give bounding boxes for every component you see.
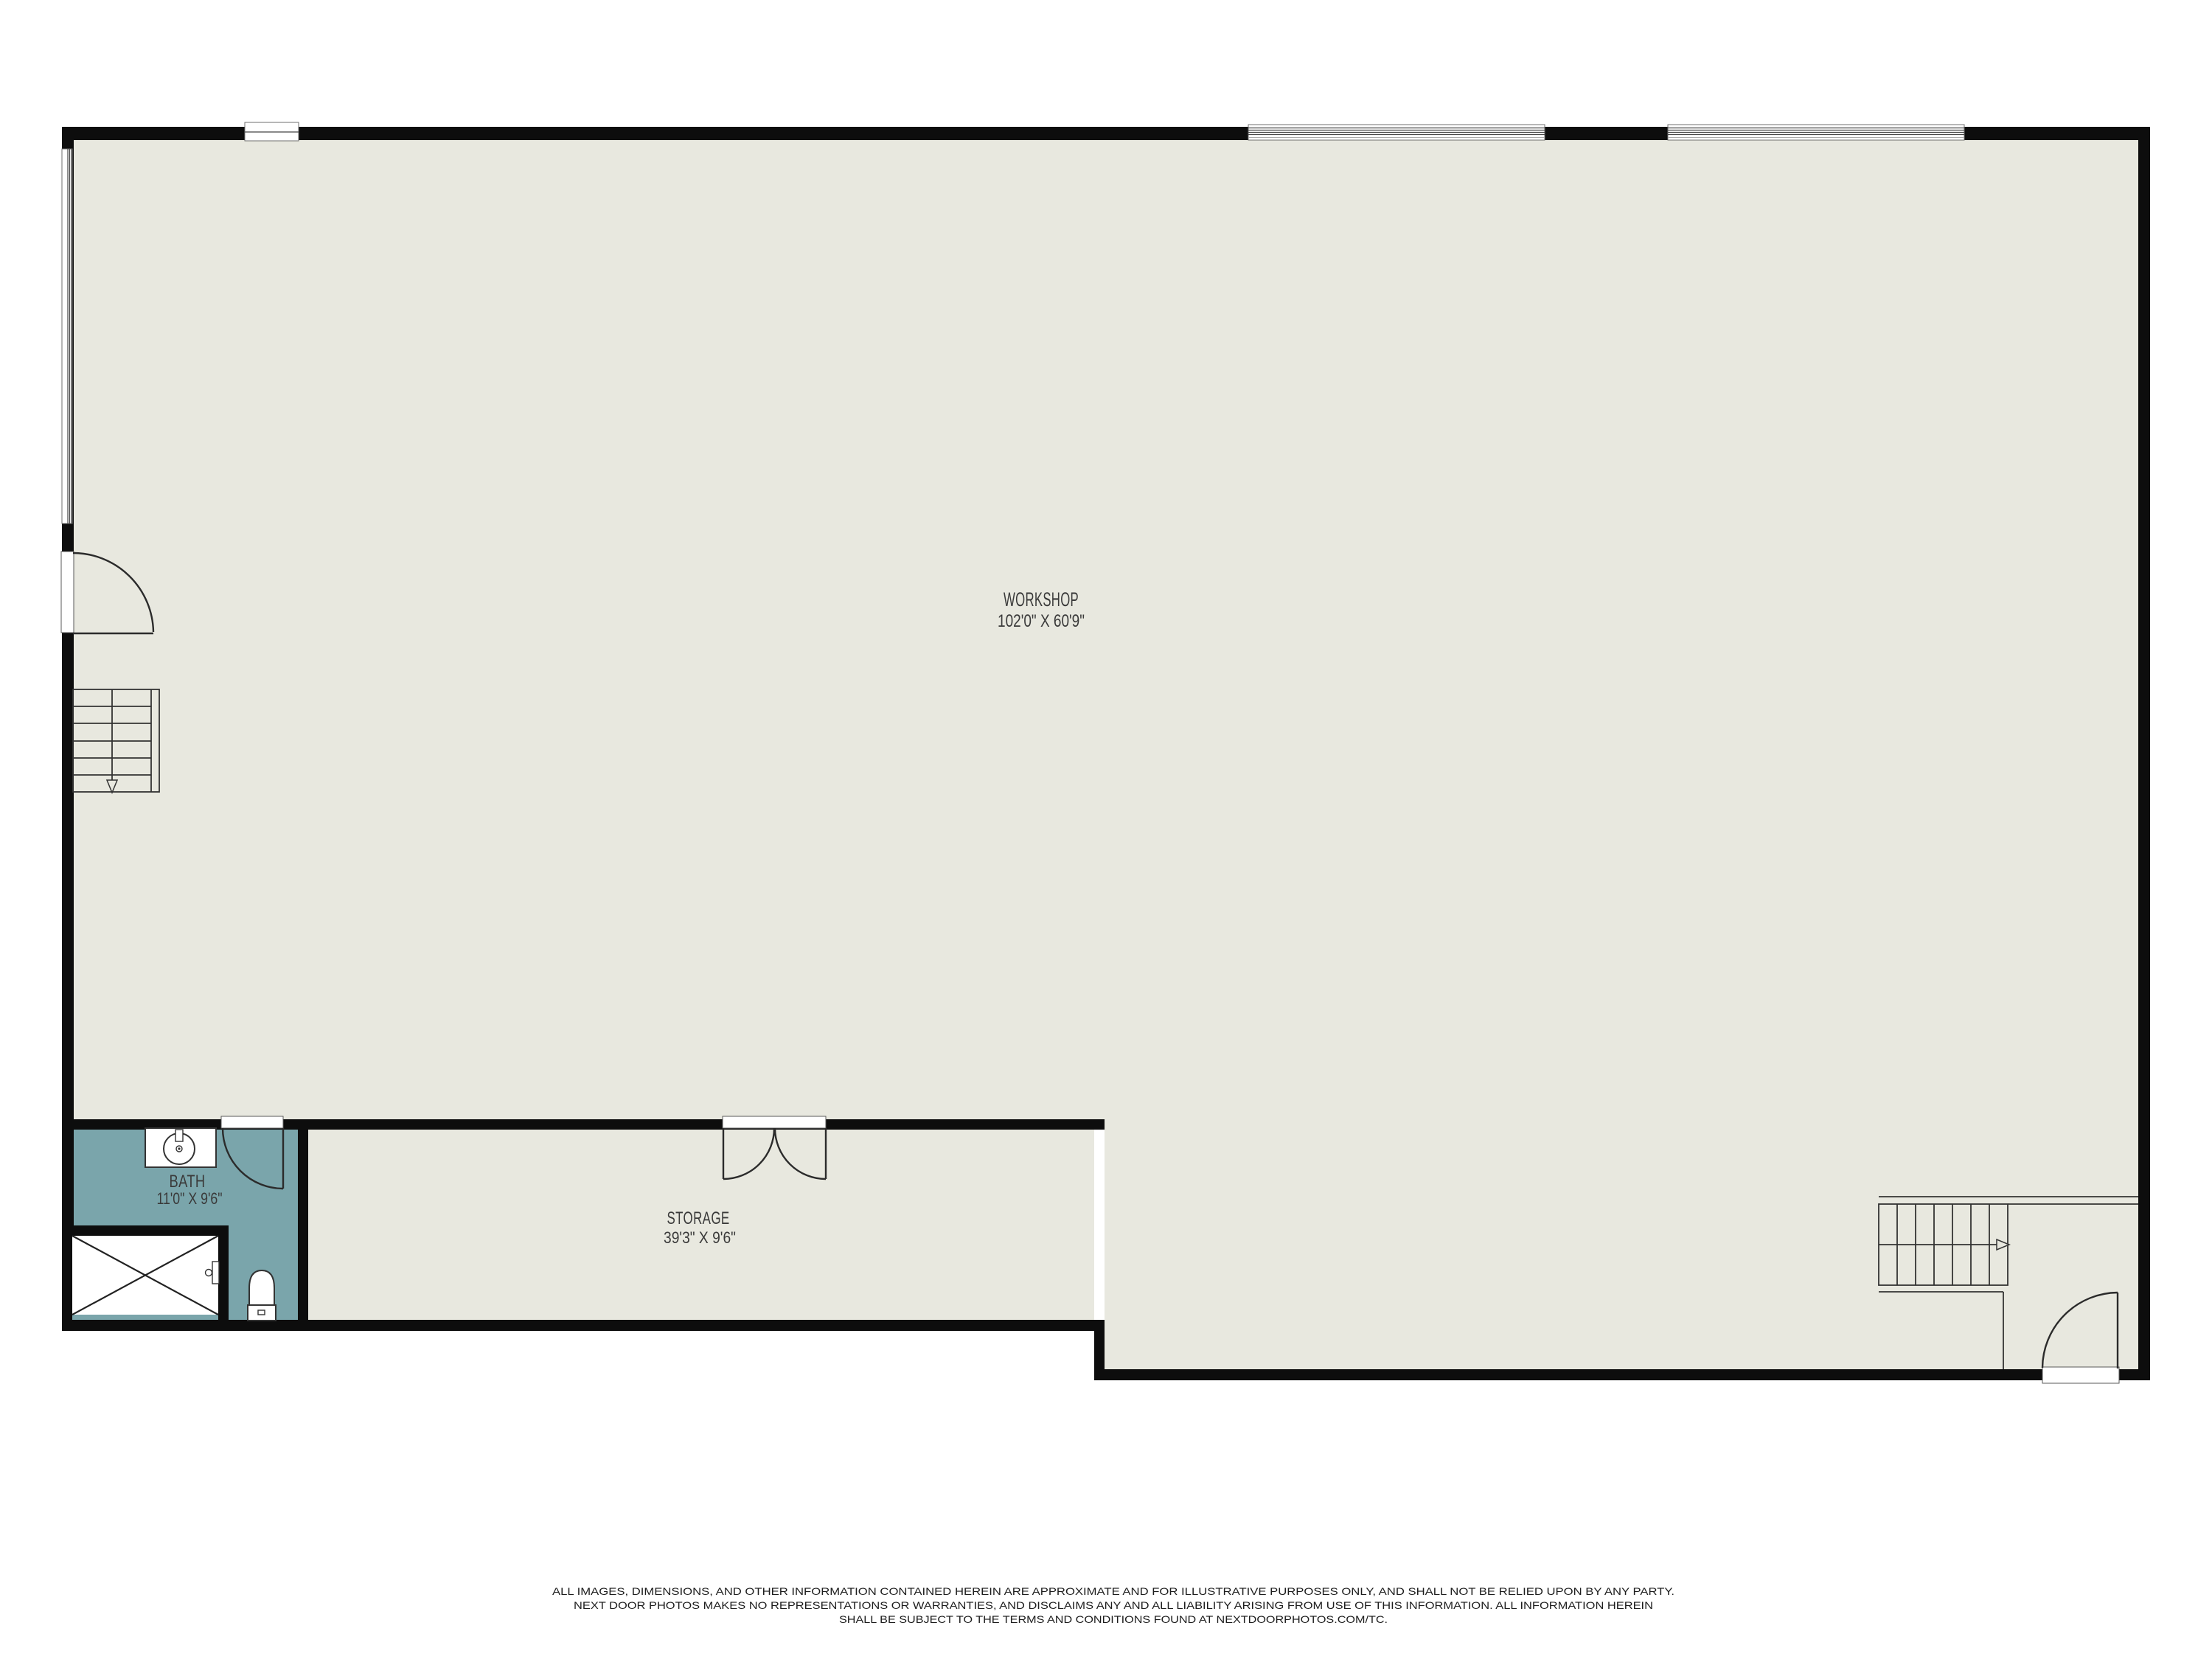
toilet-icon xyxy=(248,1270,276,1321)
top-wall-window-2 xyxy=(1668,125,1964,140)
shower-handle-icon xyxy=(212,1262,219,1284)
wall-right xyxy=(2138,127,2150,1380)
workshop-label: WORKSHOP xyxy=(1004,588,1079,611)
wall-bottom-right xyxy=(1094,1369,2150,1380)
top-wall-window-1 xyxy=(1248,125,1545,140)
bath-dimensions: 11'0" X 9'6" xyxy=(157,1189,223,1208)
shower-icon xyxy=(62,1225,229,1330)
bath-label: BATH xyxy=(170,1172,206,1192)
sink-icon xyxy=(145,1128,216,1167)
workshop-dimensions: 102'0" X 60'9" xyxy=(998,611,1085,631)
floor-areas xyxy=(74,139,2138,1371)
disclaimer: ALL IMAGES, DIMENSIONS, AND OTHER INFORM… xyxy=(552,1585,1674,1625)
storage-label: STORAGE xyxy=(667,1208,730,1228)
wall-interior-horizontal xyxy=(62,1119,1105,1130)
floor-plan-canvas: WORKSHOP 102'0" X 60'9" STORAGE 39'3" X … xyxy=(0,0,2212,1659)
wall-bath-right xyxy=(298,1119,308,1331)
floor-plan-page: WORKSHOP 102'0" X 60'9" STORAGE 39'3" X … xyxy=(0,0,2212,1659)
disclaimer-line-2: NEXT DOOR PHOTOS MAKES NO REPRESENTATION… xyxy=(574,1599,1653,1611)
workshop-floor xyxy=(74,139,2138,1124)
disclaimer-line-3: SHALL BE SUBJECT TO THE TERMS AND CONDIT… xyxy=(839,1613,1388,1625)
top-wall-small-window xyxy=(245,122,299,141)
left-wall-window xyxy=(62,149,72,524)
storage-dimensions: 39'3" X 9'6" xyxy=(664,1228,736,1247)
disclaimer-line-1: ALL IMAGES, DIMENSIONS, AND OTHER INFORM… xyxy=(552,1585,1674,1597)
workshop-lower-floor xyxy=(1105,1121,2138,1371)
